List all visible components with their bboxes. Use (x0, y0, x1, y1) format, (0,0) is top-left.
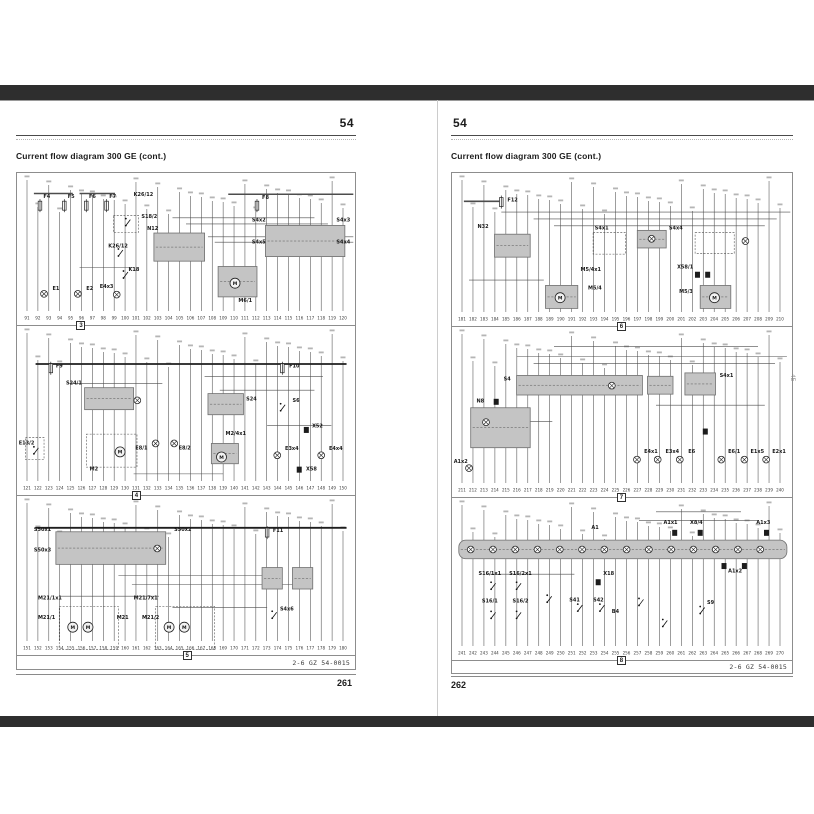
svg-text:237: 237 (743, 488, 751, 493)
svg-text:93: 93 (46, 316, 52, 321)
svg-text:249: 249 (546, 651, 554, 656)
diagram-band: 2112122132142152162172182192202212222232… (452, 327, 792, 498)
svg-text:186: 186 (513, 317, 521, 322)
svg-text:190: 190 (557, 317, 565, 322)
svg-text:M: M (233, 281, 238, 287)
svg-text:S4x2: S4x2 (252, 218, 266, 224)
wiring-schematic: 9192939495969798991001011021031041051061… (17, 173, 355, 325)
section-number-marker: 6 (617, 322, 626, 331)
svg-text:262: 262 (688, 651, 696, 656)
svg-text:188: 188 (535, 317, 543, 322)
svg-text:S24/1: S24/1 (66, 380, 82, 386)
chapter-number: 54 (453, 116, 467, 130)
svg-text:166: 166 (187, 646, 195, 651)
svg-text:148: 148 (317, 486, 325, 491)
wiring-schematic: 1211221231241251261271281291301311321331… (17, 326, 355, 495)
svg-text:242: 242 (469, 651, 477, 656)
svg-text:E8/1: E8/1 (135, 445, 148, 451)
svg-text:136: 136 (187, 486, 195, 491)
svg-text:96: 96 (79, 316, 85, 321)
svg-text:S42: S42 (593, 598, 604, 604)
svg-text:116: 116 (295, 316, 303, 321)
svg-text:173: 173 (263, 646, 271, 651)
svg-text:E8/2: E8/2 (179, 445, 192, 451)
svg-text:137: 137 (197, 486, 205, 491)
diagram-code: 2-6 GZ 54-0015 (292, 659, 350, 667)
svg-text:98: 98 (101, 316, 107, 321)
svg-text:M21/1x1: M21/1x1 (38, 595, 62, 601)
svg-text:M: M (118, 450, 123, 456)
svg-text:103: 103 (154, 316, 162, 321)
svg-text:105: 105 (176, 316, 184, 321)
svg-text:S50x2: S50x2 (174, 527, 192, 533)
svg-text:181: 181 (458, 317, 466, 322)
svg-text:162: 162 (143, 646, 151, 651)
svg-text:100: 100 (121, 316, 129, 321)
svg-text:218: 218 (535, 488, 543, 493)
svg-text:230: 230 (666, 488, 674, 493)
svg-text:167: 167 (197, 646, 205, 651)
svg-text:N12: N12 (147, 226, 159, 232)
svg-text:144: 144 (274, 486, 282, 491)
svg-text:259: 259 (655, 651, 663, 656)
svg-text:241: 241 (458, 651, 466, 656)
svg-text:125: 125 (67, 486, 75, 491)
svg-text:176: 176 (295, 646, 303, 651)
svg-text:128: 128 (99, 486, 107, 491)
svg-text:S6: S6 (292, 398, 300, 404)
svg-text:251: 251 (568, 651, 576, 656)
svg-text:S18/2: S18/2 (141, 214, 157, 220)
svg-text:253: 253 (590, 651, 598, 656)
svg-text:N32: N32 (478, 224, 490, 230)
svg-text:122: 122 (34, 486, 42, 491)
svg-text:M6/1: M6/1 (238, 298, 252, 304)
svg-text:104: 104 (165, 316, 173, 321)
svg-text:E6/1: E6/1 (728, 449, 741, 455)
svg-text:213: 213 (480, 488, 488, 493)
svg-text:X58/1: X58/1 (677, 265, 694, 271)
svg-text:M21/7x1: M21/7x1 (134, 595, 158, 601)
svg-text:196: 196 (623, 317, 631, 322)
svg-text:M: M (219, 455, 224, 461)
svg-text:A1: A1 (591, 525, 599, 531)
svg-text:233: 233 (699, 488, 707, 493)
svg-text:210: 210 (776, 317, 784, 322)
svg-text:164: 164 (165, 646, 173, 651)
svg-text:141: 141 (241, 486, 249, 491)
page-261: 54 Current flow diagram 300 GE (cont.) 9… (16, 0, 356, 814)
svg-text:223: 223 (590, 488, 598, 493)
svg-text:269: 269 (765, 651, 773, 656)
svg-text:126: 126 (78, 486, 86, 491)
svg-text:99: 99 (112, 316, 118, 321)
svg-text:239: 239 (765, 488, 773, 493)
svg-text:X58: X58 (306, 466, 317, 472)
section-number-marker: 7 (617, 493, 626, 502)
svg-text:246: 246 (513, 651, 521, 656)
svg-text:121: 121 (23, 486, 31, 491)
svg-text:X8/4: X8/4 (690, 520, 703, 526)
svg-text:192: 192 (579, 317, 587, 322)
svg-text:A1x1: A1x1 (663, 520, 678, 526)
diagram-band: 1811821831841851861871881891901911921931… (452, 173, 792, 327)
svg-text:215: 215 (502, 488, 510, 493)
svg-text:124: 124 (56, 486, 64, 491)
svg-text:F7: F7 (109, 194, 116, 200)
svg-text:140: 140 (230, 486, 238, 491)
svg-text:258: 258 (644, 651, 652, 656)
svg-text:264: 264 (710, 651, 718, 656)
svg-text:153: 153 (45, 646, 53, 651)
svg-text:111: 111 (241, 316, 249, 321)
svg-text:206: 206 (732, 317, 740, 322)
svg-text:109: 109 (219, 316, 227, 321)
svg-text:S50x3: S50x3 (34, 548, 52, 554)
svg-text:112: 112 (252, 316, 260, 321)
svg-text:E1: E1 (52, 286, 59, 292)
svg-text:266: 266 (732, 651, 740, 656)
page-number: 262 (451, 680, 466, 690)
svg-text:S4x1: S4x1 (595, 226, 609, 232)
svg-text:F12: F12 (507, 197, 518, 203)
svg-text:200: 200 (666, 317, 674, 322)
svg-text:217: 217 (524, 488, 532, 493)
svg-text:S50x1: S50x1 (34, 527, 52, 533)
svg-text:S4x1: S4x1 (720, 373, 734, 379)
svg-text:107: 107 (197, 316, 205, 321)
svg-text:205: 205 (721, 317, 729, 322)
svg-text:267: 267 (743, 651, 751, 656)
svg-text:S16/2x1: S16/2x1 (509, 571, 532, 577)
svg-text:221: 221 (568, 488, 576, 493)
svg-text:193: 193 (590, 317, 598, 322)
svg-text:M21/2: M21/2 (142, 615, 160, 621)
svg-text:244: 244 (491, 651, 499, 656)
svg-text:180: 180 (339, 646, 347, 651)
svg-text:91: 91 (24, 316, 30, 321)
svg-text:S4x4: S4x4 (336, 240, 350, 246)
svg-text:158: 158 (99, 646, 107, 651)
svg-text:M5/3: M5/3 (679, 289, 693, 295)
svg-text:265: 265 (721, 651, 729, 656)
svg-text:238: 238 (754, 488, 762, 493)
svg-text:F5: F5 (68, 194, 75, 200)
svg-text:143: 143 (263, 486, 271, 491)
svg-text:M: M (167, 625, 172, 631)
svg-text:E3x4: E3x4 (285, 446, 299, 452)
svg-text:115: 115 (285, 316, 293, 321)
svg-text:95: 95 (68, 316, 74, 321)
svg-text:106: 106 (187, 316, 195, 321)
svg-text:M: M (86, 625, 91, 631)
footer-rule (16, 674, 356, 675)
svg-text:252: 252 (579, 651, 587, 656)
svg-text:S4x3: S4x3 (336, 218, 350, 224)
svg-text:M: M (182, 625, 187, 631)
svg-text:K26/12: K26/12 (108, 243, 128, 249)
svg-text:S16/1: S16/1 (482, 598, 498, 604)
svg-text:129: 129 (110, 486, 118, 491)
svg-text:226: 226 (623, 488, 631, 493)
svg-text:236: 236 (732, 488, 740, 493)
svg-text:127: 127 (88, 486, 96, 491)
svg-text:110: 110 (230, 316, 238, 321)
diagram-title: Current flow diagram 300 GE (cont.) (16, 151, 166, 161)
diagram-band: 2412422432442452462472482492502512522532… (452, 498, 792, 661)
svg-text:S4x6: S4x6 (280, 606, 294, 612)
header-rule (451, 135, 793, 136)
svg-text:270: 270 (776, 651, 784, 656)
svg-text:131: 131 (132, 486, 140, 491)
svg-text:150: 150 (339, 486, 347, 491)
svg-text:S4x4: S4x4 (669, 226, 683, 232)
section-number-marker: 8 (617, 656, 626, 665)
svg-text:156: 156 (78, 646, 86, 651)
footer-rule (451, 676, 793, 677)
svg-text:157: 157 (88, 646, 96, 651)
svg-text:182: 182 (469, 317, 477, 322)
wiring-schematic: 2112122132142152162172182192202212222232… (452, 327, 792, 497)
svg-text:135: 135 (176, 486, 184, 491)
svg-text:B4: B4 (612, 609, 620, 615)
svg-text:E2x1: E2x1 (772, 449, 786, 455)
svg-text:172: 172 (252, 646, 260, 651)
svg-text:254: 254 (601, 651, 609, 656)
svg-text:225: 225 (612, 488, 620, 493)
svg-text:163: 163 (154, 646, 162, 651)
svg-text:E3x4: E3x4 (666, 449, 680, 455)
svg-text:199: 199 (655, 317, 663, 322)
svg-text:211: 211 (458, 488, 466, 493)
svg-text:175: 175 (285, 646, 293, 651)
svg-text:174: 174 (274, 646, 282, 651)
svg-text:189: 189 (546, 317, 554, 322)
diagram-code: 2-6 GZ 54-0015 (729, 663, 787, 671)
svg-text:E1x5: E1x5 (751, 449, 765, 455)
svg-text:204: 204 (710, 317, 718, 322)
svg-text:113: 113 (263, 316, 271, 321)
svg-text:117: 117 (306, 316, 314, 321)
svg-text:120: 120 (339, 316, 347, 321)
svg-text:152: 152 (34, 646, 42, 651)
svg-text:94: 94 (57, 316, 63, 321)
svg-text:159: 159 (110, 646, 118, 651)
svg-text:F4: F4 (43, 194, 50, 200)
svg-text:245: 245 (502, 651, 510, 656)
svg-text:132: 132 (143, 486, 151, 491)
svg-text:151: 151 (23, 646, 31, 651)
svg-text:M: M (558, 295, 563, 301)
svg-text:F8: F8 (262, 195, 269, 201)
svg-text:S16/2: S16/2 (513, 598, 529, 604)
svg-text:256: 256 (623, 651, 631, 656)
svg-text:119: 119 (328, 316, 336, 321)
svg-text:184: 184 (491, 317, 499, 322)
page-number: 261 (337, 678, 352, 688)
svg-text:K26/12: K26/12 (134, 192, 154, 198)
svg-text:169: 169 (219, 646, 227, 651)
svg-text:S41: S41 (569, 598, 580, 604)
svg-text:E2: E2 (86, 286, 93, 292)
svg-text:149: 149 (328, 486, 336, 491)
svg-text:S9: S9 (707, 600, 715, 606)
svg-text:M2: M2 (90, 466, 99, 472)
svg-text:247: 247 (524, 651, 532, 656)
section-number-marker: 4 (132, 491, 141, 500)
svg-text:224: 224 (601, 488, 609, 493)
svg-text:222: 222 (579, 488, 587, 493)
svg-text:183: 183 (480, 317, 488, 322)
svg-text:M21/1: M21/1 (38, 615, 56, 621)
svg-text:261: 261 (677, 651, 685, 656)
svg-text:E4x3: E4x3 (100, 284, 114, 290)
document-viewer: 54 Current flow diagram 300 GE (cont.) 9… (0, 0, 814, 814)
svg-text:X18: X18 (603, 571, 614, 577)
svg-text:F10: F10 (289, 363, 300, 369)
wiring-schematic: 2412422432442452462472482492502512522532… (452, 498, 792, 660)
svg-text:E4x1: E4x1 (644, 449, 658, 455)
svg-text:165: 165 (176, 646, 184, 651)
diagram-band: 1211221231241251261271281291301311321331… (17, 326, 355, 496)
diagram-band: 1511521531541551561571581591601611621631… (17, 496, 355, 656)
section-number-marker: 3 (76, 321, 85, 330)
svg-text:155: 155 (67, 646, 75, 651)
svg-text:F9: F9 (56, 363, 63, 369)
svg-text:194: 194 (601, 317, 609, 322)
svg-text:S4: S4 (504, 377, 512, 383)
svg-text:134: 134 (165, 486, 173, 491)
svg-text:250: 250 (557, 651, 565, 656)
svg-text:195: 195 (612, 317, 620, 322)
svg-text:97: 97 (90, 316, 96, 321)
svg-text:142: 142 (252, 486, 260, 491)
page-262: 54 Current flow diagram 300 GE (cont.) 1… (451, 0, 793, 814)
svg-text:202: 202 (688, 317, 696, 322)
svg-text:248: 248 (535, 651, 543, 656)
svg-text:209: 209 (765, 317, 773, 322)
svg-text:S4x5: S4x5 (252, 240, 266, 246)
svg-text:E4x4: E4x4 (329, 446, 343, 452)
svg-text:191: 191 (568, 317, 576, 322)
diagram-band: 9192939495969798991001011021031041051061… (17, 173, 355, 326)
svg-text:92: 92 (35, 316, 41, 321)
svg-text:N8: N8 (476, 399, 484, 405)
svg-text:171: 171 (241, 646, 249, 651)
svg-text:154: 154 (56, 646, 64, 651)
svg-text:S16/1x1: S16/1x1 (479, 571, 502, 577)
svg-text:E6: E6 (688, 449, 695, 455)
svg-text:M5/4x1: M5/4x1 (581, 267, 602, 273)
svg-text:138: 138 (208, 486, 216, 491)
svg-text:K18: K18 (129, 267, 140, 273)
svg-text:M5/4: M5/4 (588, 285, 602, 291)
svg-text:232: 232 (688, 488, 696, 493)
svg-text:201: 201 (677, 317, 685, 322)
svg-text:185: 185 (502, 317, 510, 322)
svg-text:178: 178 (317, 646, 325, 651)
svg-text:147: 147 (306, 486, 314, 491)
svg-text:197: 197 (634, 317, 642, 322)
svg-text:161: 161 (132, 646, 140, 651)
svg-text:187: 187 (524, 317, 532, 322)
svg-text:M: M (712, 295, 717, 301)
svg-text:198: 198 (644, 317, 652, 322)
svg-text:118: 118 (317, 316, 325, 321)
svg-text:160: 160 (121, 646, 129, 651)
svg-text:133: 133 (154, 486, 162, 491)
section-number-marker: 5 (183, 651, 192, 660)
svg-text:216: 216 (513, 488, 521, 493)
svg-text:268: 268 (754, 651, 762, 656)
svg-text:M: M (70, 625, 75, 631)
svg-text:168: 168 (208, 646, 216, 651)
svg-text:240: 240 (776, 488, 784, 493)
svg-text:228: 228 (644, 488, 652, 493)
svg-text:208: 208 (754, 317, 762, 322)
svg-text:X52: X52 (312, 423, 323, 429)
svg-text:219: 219 (546, 488, 554, 493)
diagram-frame: 9192939495969798991001011021031041051061… (16, 172, 356, 670)
svg-text:130: 130 (121, 486, 129, 491)
svg-text:A1x2: A1x2 (728, 569, 743, 575)
svg-text:235: 235 (721, 488, 729, 493)
svg-text:A1x2: A1x2 (454, 459, 469, 465)
svg-text:212: 212 (469, 488, 477, 493)
chapter-number: 54 (340, 116, 354, 130)
svg-text:220: 220 (557, 488, 565, 493)
svg-text:F6: F6 (89, 194, 96, 200)
svg-text:257: 257 (634, 651, 642, 656)
header-rule-echo (16, 139, 356, 140)
diagram-title: Current flow diagram 300 GE (cont.) (451, 151, 601, 161)
svg-text:170: 170 (230, 646, 238, 651)
svg-text:207: 207 (743, 317, 751, 322)
header-rule-echo (451, 139, 793, 140)
svg-text:145: 145 (285, 486, 293, 491)
svg-text:M2/4x1: M2/4x1 (226, 431, 247, 437)
svg-text:227: 227 (634, 488, 642, 493)
svg-text:114: 114 (274, 316, 282, 321)
svg-text:A1x3: A1x3 (756, 520, 771, 526)
svg-text:E13/2: E13/2 (19, 440, 35, 446)
svg-text:101: 101 (132, 316, 140, 321)
svg-text:123: 123 (45, 486, 53, 491)
svg-text:177: 177 (306, 646, 314, 651)
svg-text:231: 231 (677, 488, 685, 493)
svg-text:146: 146 (295, 486, 303, 491)
svg-text:255: 255 (612, 651, 620, 656)
svg-text:203: 203 (699, 317, 707, 322)
svg-text:139: 139 (219, 486, 227, 491)
diagram-frame: 1811821831841851861871881891901911921931… (451, 172, 793, 674)
svg-text:229: 229 (655, 488, 663, 493)
svg-text:260: 260 (666, 651, 674, 656)
svg-text:179: 179 (328, 646, 336, 651)
svg-text:102: 102 (143, 316, 151, 321)
wiring-schematic: 1511521531541551561571581591601611621631… (17, 496, 355, 655)
page-gutter-shadow (437, 100, 438, 716)
svg-text:263: 263 (699, 651, 707, 656)
svg-text:214: 214 (491, 488, 499, 493)
wiring-schematic: 1811821831841851861871881891901911921931… (452, 173, 792, 326)
svg-text:M21: M21 (117, 615, 129, 621)
svg-text:F11: F11 (273, 528, 284, 534)
svg-text:243: 243 (480, 651, 488, 656)
svg-text:108: 108 (208, 316, 216, 321)
svg-text:234: 234 (710, 488, 718, 493)
svg-text:S24: S24 (246, 396, 257, 402)
